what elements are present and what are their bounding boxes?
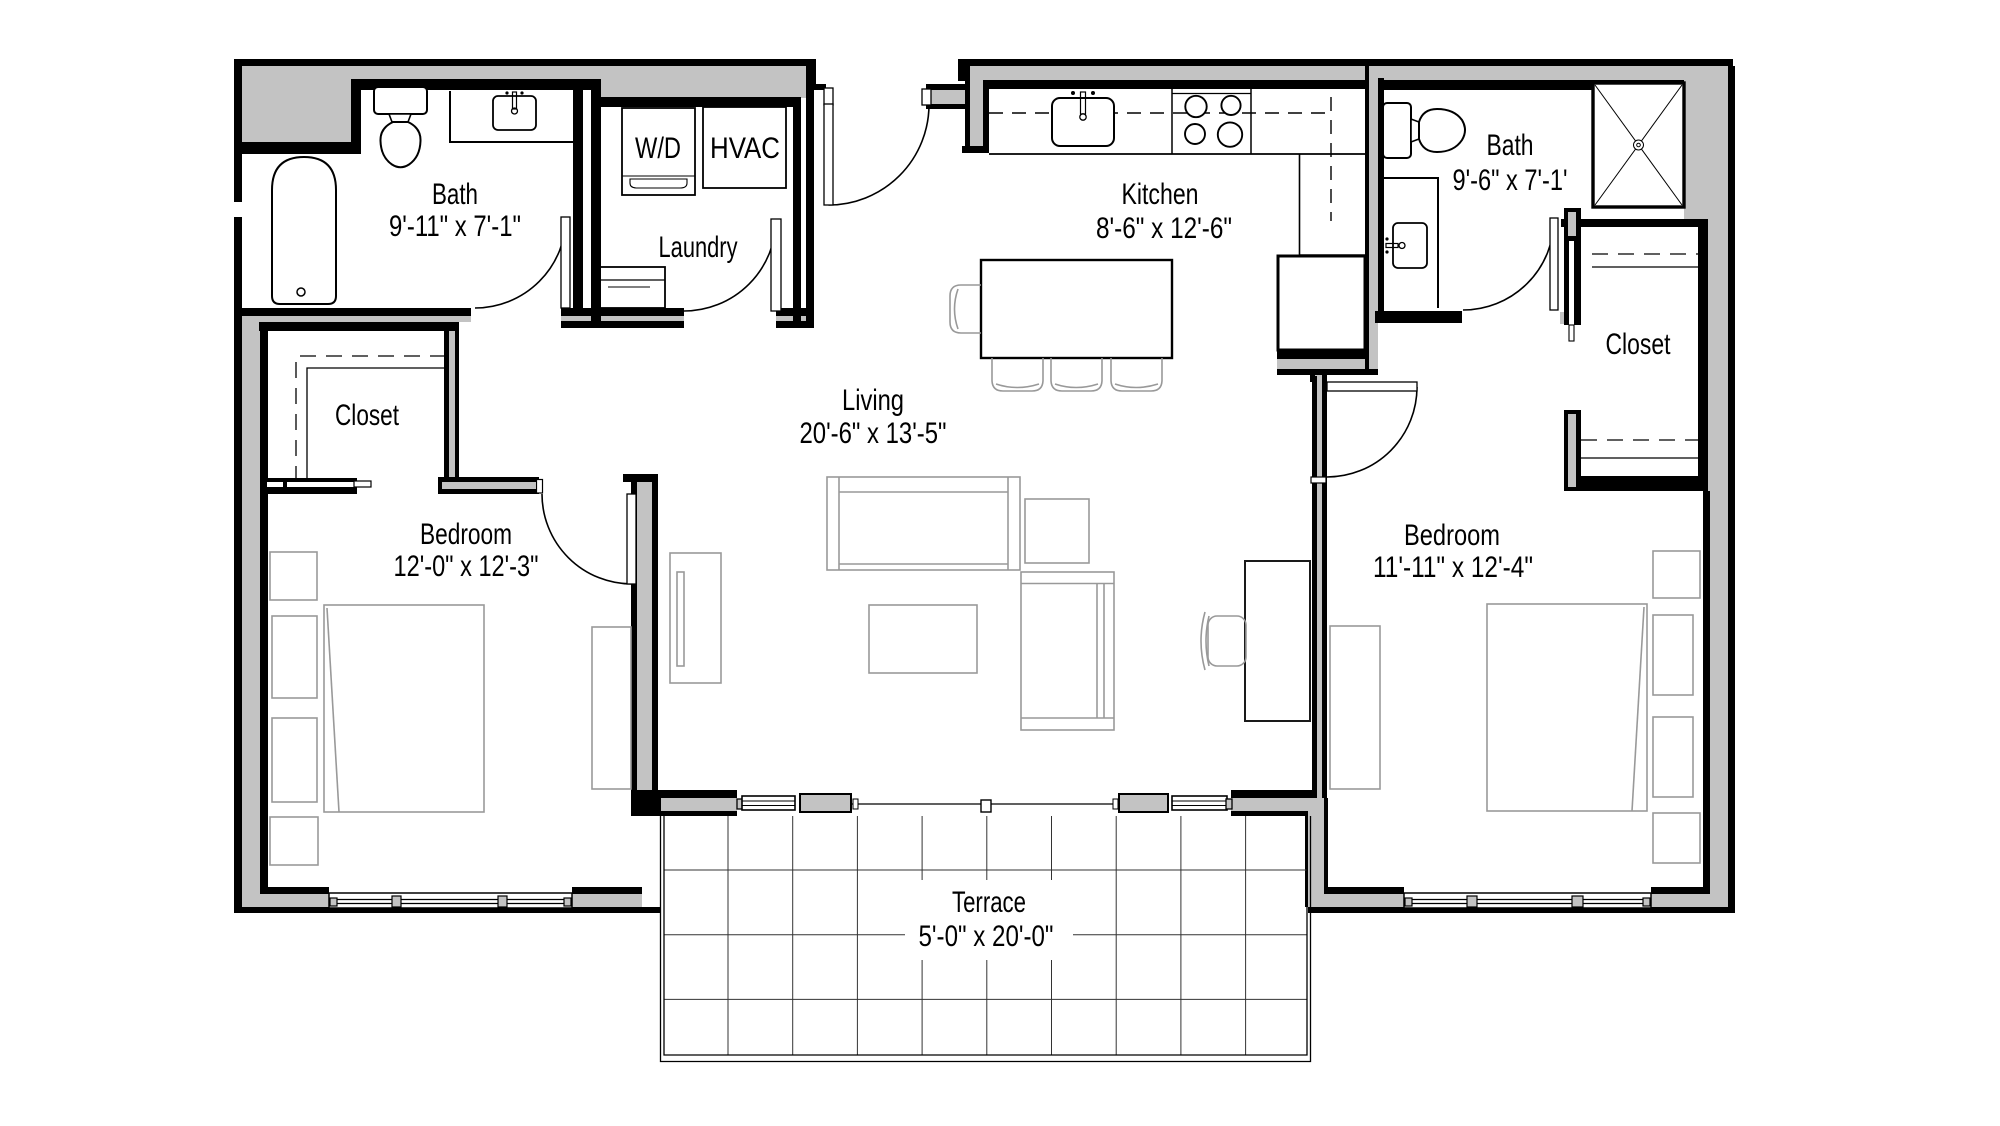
svg-text:HVAC: HVAC xyxy=(710,132,780,165)
svg-text:Closet: Closet xyxy=(1606,328,1671,361)
svg-text:9'-6" x 7'-1': 9'-6" x 7'-1' xyxy=(1453,164,1568,197)
svg-text:9'-11" x 7'-1": 9'-11" x 7'-1" xyxy=(389,210,521,243)
svg-text:20'-6" x 13'-5": 20'-6" x 13'-5" xyxy=(800,417,947,450)
svg-text:Bedroom: Bedroom xyxy=(1404,519,1500,552)
svg-text:Kitchen: Kitchen xyxy=(1122,178,1199,211)
svg-text:Terrace: Terrace xyxy=(952,886,1026,919)
svg-text:5'-0" x 20'-0": 5'-0" x 20'-0" xyxy=(919,920,1054,953)
svg-text:Bath: Bath xyxy=(1487,129,1534,162)
svg-text:W/D: W/D xyxy=(635,132,681,165)
svg-text:Closet: Closet xyxy=(335,399,399,432)
svg-text:Bedroom: Bedroom xyxy=(420,518,512,551)
svg-text:11'-11" x 12'-4": 11'-11" x 12'-4" xyxy=(1373,551,1533,584)
svg-text:12'-0" x 12'-3": 12'-0" x 12'-3" xyxy=(394,550,539,583)
svg-text:Bath: Bath xyxy=(432,178,478,211)
svg-text:8'-6" x 12'-6": 8'-6" x 12'-6" xyxy=(1096,212,1232,245)
svg-text:Living: Living xyxy=(842,384,904,417)
svg-text:Laundry: Laundry xyxy=(659,231,738,264)
